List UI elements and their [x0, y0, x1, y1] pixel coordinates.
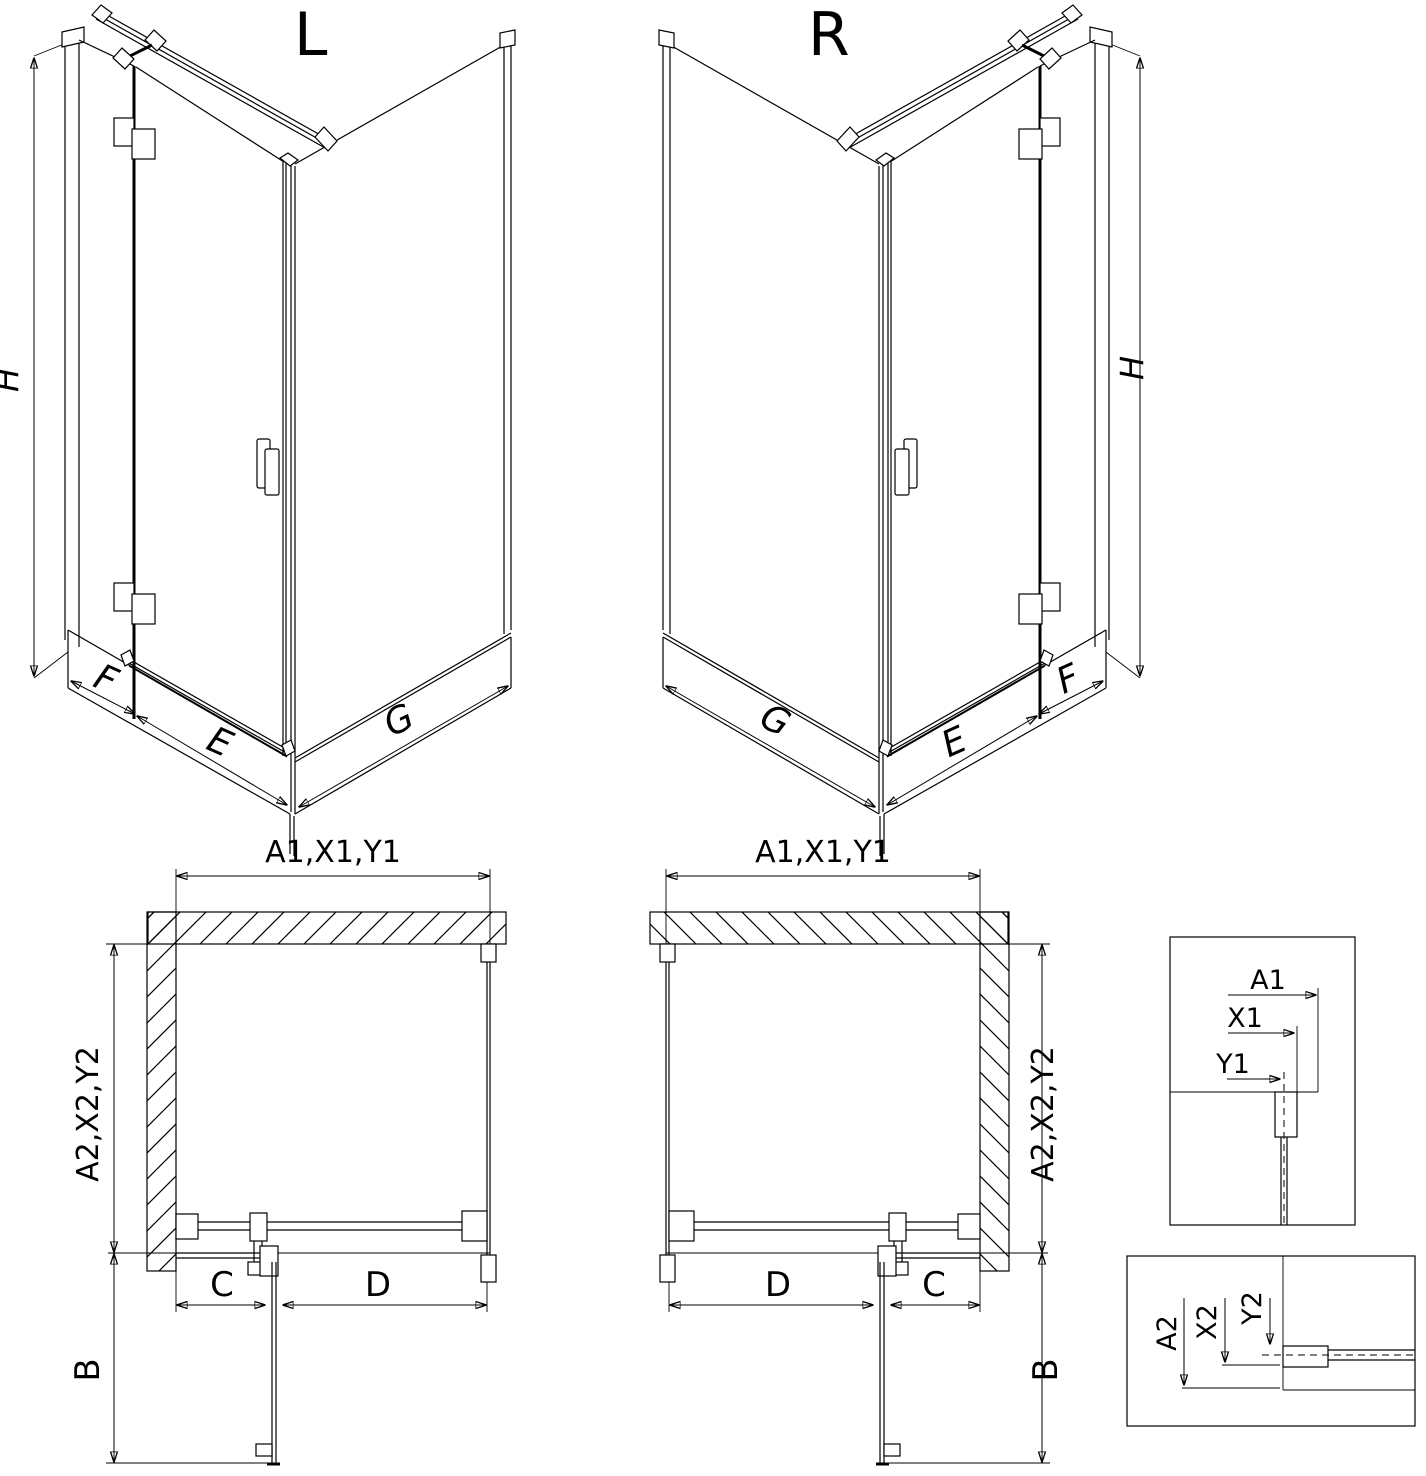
- view-title-left: L: [294, 0, 328, 70]
- iso-view-left: [34, 5, 515, 856]
- label-height-right: H: [1113, 356, 1151, 380]
- wall-profile-section: [1283, 1346, 1328, 1367]
- label-d-right: D: [765, 1265, 791, 1305]
- label-depth-dim-right: A2,X2,Y2: [1026, 1046, 1061, 1182]
- label-y2-detail: Y2: [1237, 1291, 1268, 1326]
- label-g-right: G: [754, 696, 797, 745]
- label-x1-detail: X1: [1227, 1003, 1263, 1034]
- label-b-right: B: [1026, 1358, 1066, 1381]
- label-b-left: B: [68, 1358, 108, 1381]
- label-y1-detail: Y1: [1215, 1049, 1250, 1080]
- label-f-left: F: [88, 657, 125, 703]
- label-d-left: D: [365, 1265, 391, 1305]
- label-c-left: C: [210, 1265, 234, 1305]
- label-a1-detail: A1: [1250, 965, 1286, 996]
- plan-view-left: [106, 869, 506, 1464]
- plan-view-right: [650, 869, 1050, 1464]
- label-c-right: C: [922, 1265, 946, 1305]
- technical-drawing-page: L H F E G R H G E F A1,X1,Y1 A2,X2,Y2 C …: [0, 0, 1426, 1476]
- label-e-left: E: [201, 719, 239, 766]
- wall-profile-section: [1275, 1092, 1297, 1137]
- label-depth-dim-left: A2,X2,Y2: [71, 1046, 106, 1182]
- shower-enclosure-technical-drawing: L H F E G R H G E F A1,X1,Y1 A2,X2,Y2 C …: [0, 0, 1426, 1476]
- label-g-left: G: [377, 696, 420, 745]
- view-title-right: R: [808, 0, 850, 70]
- label-e-right: E: [936, 719, 974, 766]
- label-f-right: F: [1051, 656, 1088, 702]
- label-a2-detail: A2: [1152, 1315, 1183, 1351]
- label-height-left: H: [0, 368, 26, 392]
- label-width-dim-right: A1,X1,Y1: [755, 835, 891, 870]
- label-x2-detail: X2: [1192, 1304, 1223, 1340]
- label-width-dim-left: A1,X1,Y1: [265, 835, 401, 870]
- iso-view-right: [659, 5, 1140, 856]
